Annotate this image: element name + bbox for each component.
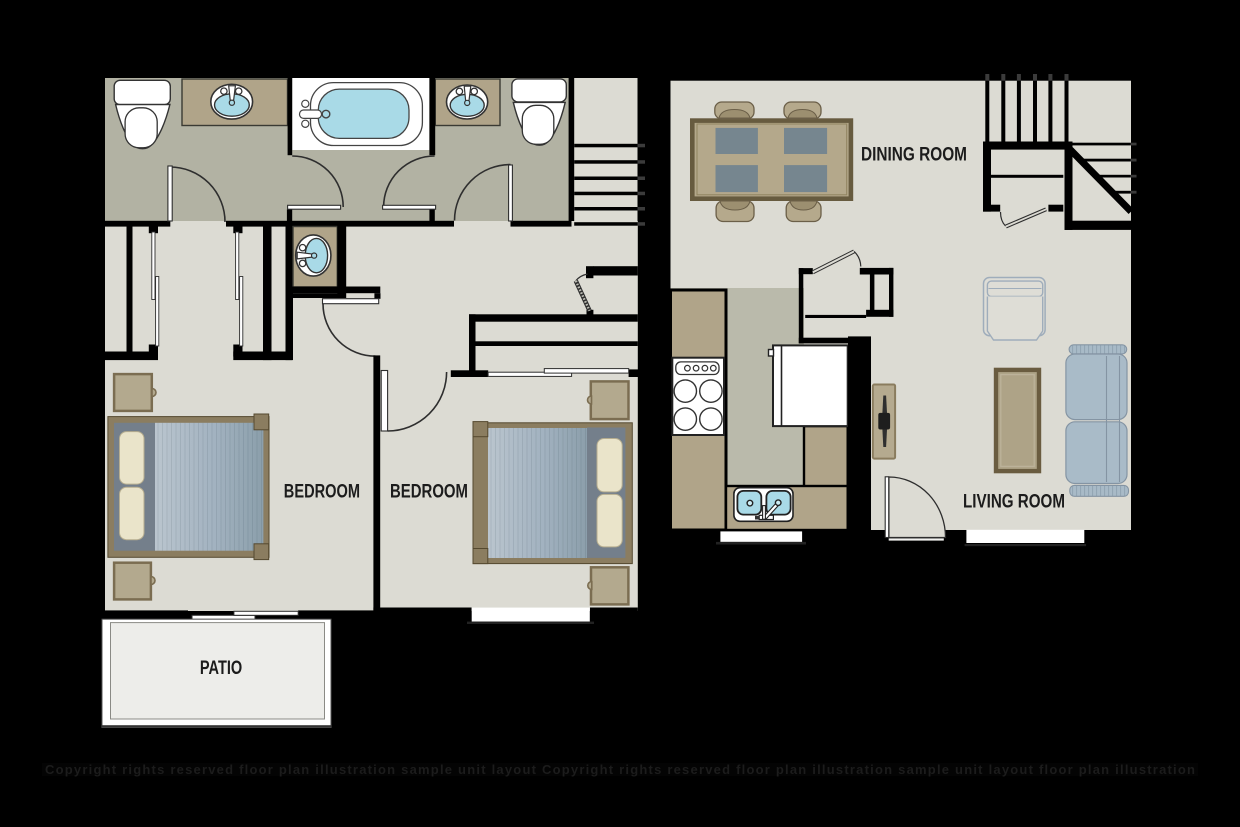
svg-text:BEDROOM: BEDROOM: [284, 481, 360, 503]
svg-text:DINING ROOM: DINING ROOM: [861, 144, 967, 166]
svg-text:PATIO: PATIO: [200, 657, 242, 679]
svg-text:Copyright rights reserved floo: Copyright rights reserved floor plan ill…: [45, 762, 1195, 777]
svg-text:BEDROOM: BEDROOM: [390, 481, 468, 503]
svg-text:LIVING ROOM: LIVING ROOM: [963, 491, 1065, 513]
